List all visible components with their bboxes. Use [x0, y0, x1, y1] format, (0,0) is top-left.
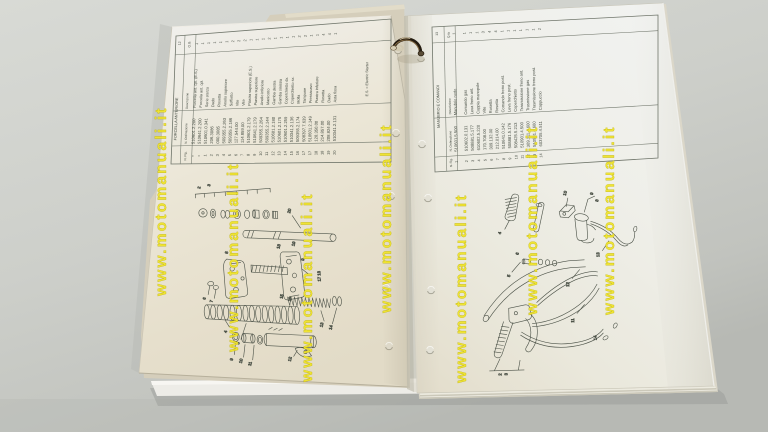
- svg-text:Coperchietto: Coperchietto: [512, 88, 517, 112]
- svg-text:1: 1: [249, 39, 253, 41]
- svg-text:2: 2: [231, 40, 235, 42]
- svg-text:www.motomanuali.it: www.motomanuali.it: [378, 123, 395, 314]
- svg-text:Q.tà: Q.tà: [447, 32, 451, 38]
- svg-text:12: 12: [178, 41, 182, 45]
- svg-text:Descrizione: Descrizione: [185, 92, 190, 109]
- svg-text:206.3086: 206.3086: [209, 125, 215, 143]
- svg-text:Manicotto: Manicotto: [266, 88, 270, 105]
- svg-text:510341.2.131: 510341.2.131: [332, 115, 337, 141]
- svg-text:114.859.00: 114.859.00: [240, 122, 246, 143]
- svg-text:127.544.00: 127.544.00: [234, 122, 240, 144]
- svg-text:2: 2: [304, 35, 308, 37]
- svg-text:508397.7.639: 508397.7.639: [301, 116, 306, 142]
- svg-text:2: 2: [538, 28, 542, 30]
- svg-text:212.014.00: 212.014.00: [494, 128, 499, 150]
- svg-text:N. Fig.: N. Fig.: [183, 151, 187, 160]
- svg-text:1: 1: [219, 41, 223, 43]
- svg-text:510601.2.179: 510601.2.179: [246, 117, 252, 143]
- svg-text:2: 2: [465, 160, 469, 162]
- svg-text:17: 17: [307, 151, 312, 155]
- svg-text:Dado: Dado: [327, 93, 331, 102]
- svg-text:8: 8: [502, 158, 506, 160]
- svg-text:13: 13: [276, 151, 281, 155]
- svg-text:18: 18: [313, 151, 318, 155]
- svg-text:610602.5.220: 610602.5.220: [476, 124, 481, 150]
- svg-text:1: 1: [273, 37, 277, 39]
- svg-text:11: 11: [264, 152, 269, 156]
- svg-text:510601.2.180: 510601.2.180: [270, 116, 276, 142]
- svg-text:309.132.00: 309.132.00: [488, 128, 493, 150]
- svg-text:1: 1: [207, 42, 211, 44]
- svg-text:4: 4: [477, 159, 481, 161]
- svg-text:1: 1: [525, 29, 529, 31]
- svg-text:1: 1: [500, 30, 504, 32]
- svg-text:E.S. = Electric Starter: E.S. = Electric Starter: [365, 61, 369, 96]
- svg-text:Piastra superiore: Piastra superiore: [254, 77, 259, 106]
- svg-text:3: 3: [471, 160, 475, 162]
- svg-text:1: 1: [225, 41, 229, 43]
- svg-text:1: 1: [334, 33, 338, 35]
- svg-text:6: 6: [490, 159, 494, 161]
- svg-text:510601.2.200: 510601.2.200: [191, 118, 197, 144]
- svg-text:www.motomanuali.it: www.motomanuali.it: [299, 192, 316, 383]
- svg-text:12: 12: [565, 281, 570, 286]
- svg-text:www.motomanuali.it: www.motomanuali.it: [601, 125, 618, 316]
- svg-text:www.motomanuali.it: www.motomanuali.it: [225, 162, 242, 353]
- svg-text:Q.tà: Q.tà: [187, 41, 191, 47]
- svg-text:19: 19: [326, 151, 331, 155]
- svg-text:5: 5: [227, 154, 232, 156]
- svg-text:170.708.00: 170.708.00: [482, 128, 487, 150]
- svg-text:Gamba sinistra: Gamba sinistra: [278, 78, 282, 104]
- svg-text:1: 1: [452, 33, 456, 35]
- svg-text:1: 1: [519, 29, 523, 31]
- svg-text:128.350.00: 128.350.00: [314, 120, 319, 142]
- svg-text:2: 2: [237, 40, 241, 42]
- svg-text:Coperchietto dx.: Coperchietto dx.: [284, 77, 288, 105]
- svg-text:1: 1: [195, 43, 199, 45]
- svg-text:510601.5.500: 510601.5.500: [453, 125, 458, 151]
- svg-text:Rosetta: Rosetta: [217, 93, 221, 107]
- svg-text:Descrizione: Descrizione: [448, 98, 452, 115]
- svg-text:510601.2.175: 510601.2.175: [277, 116, 282, 142]
- svg-text:MANUBRIO E COMANDI: MANUBRIO E COMANDI: [436, 85, 441, 128]
- svg-text:8: 8: [246, 154, 251, 156]
- svg-text:510601.2.259: 510601.2.259: [283, 116, 288, 142]
- svg-text:1: 1: [506, 30, 510, 32]
- svg-text:510341.2.136: 510341.2.136: [289, 116, 294, 142]
- svg-text:214.857.00: 214.857.00: [320, 120, 325, 142]
- svg-text:509355.2.264: 509355.2.264: [258, 116, 264, 142]
- svg-text:Trasmissione gas: Trasmissione gas: [525, 80, 530, 111]
- svg-text:Trasmissione freno post.: Trasmissione freno post.: [531, 67, 536, 111]
- svg-text:Anello superiore: Anello superiore: [223, 79, 228, 107]
- svg-text:Comando freno post.: Comando freno post.: [500, 75, 506, 112]
- svg-text:Tampone: Tampone: [303, 88, 307, 104]
- svg-text:Asta fissa: Asta fissa: [333, 85, 337, 102]
- svg-text:000.3085: 000.3085: [215, 125, 221, 143]
- svg-text:Vite: Vite: [242, 99, 246, 106]
- svg-text:www.motomanuali.it: www.motomanuali.it: [153, 106, 170, 297]
- svg-text:1: 1: [279, 37, 283, 39]
- svg-text:510641.0.142: 510641.0.142: [501, 123, 506, 149]
- svg-text:1: 1: [286, 36, 290, 38]
- svg-text:508881.5.177: 508881.5.177: [469, 124, 474, 150]
- svg-text:509355.2.263: 509355.2.263: [221, 117, 227, 143]
- svg-text:2: 2: [298, 35, 302, 37]
- svg-text:1: 1: [469, 32, 473, 34]
- svg-text:4: 4: [494, 30, 498, 32]
- svg-text:Serie sterzo: Serie sterzo: [205, 87, 210, 107]
- svg-text:17: 17: [301, 151, 306, 155]
- svg-text:5: 5: [483, 159, 487, 161]
- svg-text:1: 1: [213, 41, 217, 43]
- svg-text:10: 10: [514, 155, 518, 159]
- svg-text:Leva freno ant.: Leva freno ant.: [469, 88, 474, 115]
- svg-text:www.motomanuali.it: www.motomanuali.it: [524, 125, 541, 316]
- svg-text:509355.2.186: 509355.2.186: [227, 117, 233, 143]
- svg-text:Pressacavo: Pressacavo: [309, 83, 313, 103]
- svg-text:9: 9: [508, 157, 512, 159]
- svg-text:7: 7: [239, 154, 244, 156]
- svg-text:3: 3: [481, 31, 485, 33]
- svg-text:1: 1: [513, 29, 517, 31]
- svg-text:Cappuccio: Cappuccio: [537, 91, 542, 111]
- svg-text:Soffietto: Soffietto: [229, 92, 233, 106]
- svg-text:Molla: Molla: [297, 94, 301, 104]
- svg-text:Manubrio nudo: Manubrio nudo: [452, 88, 458, 116]
- svg-text:17 18: 17 18: [316, 270, 321, 281]
- svg-text:1: 1: [202, 154, 207, 156]
- svg-text:Rosetta: Rosetta: [321, 89, 325, 103]
- svg-text:508425.5.213: 508425.5.213: [513, 122, 518, 148]
- svg-text:509355.2.174: 509355.2.174: [295, 116, 300, 142]
- svg-text:Vite: Vite: [236, 100, 240, 107]
- svg-text:Gamba destra: Gamba destra: [272, 80, 276, 105]
- svg-text:510601.0.341: 510601.0.341: [203, 117, 209, 143]
- svg-text:www.motomanuali.it: www.motomanuali.it: [453, 193, 470, 384]
- svg-text:Dado: Dado: [211, 98, 215, 107]
- svg-text:1: 1: [292, 36, 296, 38]
- svg-text:Rosetta: Rosetta: [494, 98, 499, 113]
- svg-text:Comando gas: Comando gas: [463, 90, 468, 115]
- svg-text:N. Ordinazione: N. Ordinazione: [184, 123, 189, 144]
- svg-text:2: 2: [267, 37, 271, 39]
- svg-text:1: 1: [455, 161, 459, 163]
- svg-text:Trasmissione freno ant.: Trasmissione freno ant.: [519, 70, 525, 112]
- svg-text:1: 1: [201, 42, 205, 44]
- svg-text:510641.2.179: 510641.2.179: [252, 117, 258, 143]
- svg-text:14: 14: [592, 335, 597, 340]
- svg-text:4: 4: [488, 31, 492, 33]
- svg-text:4: 4: [328, 33, 332, 35]
- svg-text:18: 18: [320, 151, 325, 155]
- svg-text:13: 13: [435, 32, 439, 36]
- svg-text:1: 1: [316, 34, 320, 36]
- svg-text:1: 1: [310, 34, 314, 36]
- svg-text:N. Fig.: N. Fig.: [449, 158, 453, 167]
- svg-text:1: 1: [463, 32, 467, 34]
- svg-text:Coperchietto sx.: Coperchietto sx.: [291, 77, 295, 104]
- svg-text:6: 6: [233, 154, 238, 156]
- svg-text:Anello inferiore: Anello inferiore: [260, 80, 265, 105]
- svg-text:510601.2.149: 510601.2.149: [307, 115, 312, 141]
- svg-text:509355.2.144: 509355.2.144: [264, 116, 270, 142]
- svg-text:13: 13: [595, 252, 600, 257]
- svg-text:7: 7: [496, 158, 500, 160]
- svg-text:Vite: Vite: [482, 106, 487, 114]
- svg-text:510602.0.131: 510602.0.131: [463, 125, 468, 151]
- svg-text:9: 9: [252, 154, 257, 156]
- svg-text:1: 1: [532, 28, 536, 30]
- svg-text:2: 2: [243, 39, 247, 41]
- svg-text:510641.2.200: 510641.2.200: [197, 118, 203, 144]
- svg-text:Piastra inferiore: Piastra inferiore: [315, 76, 319, 103]
- svg-text:1: 1: [255, 38, 259, 40]
- svg-text:3: 3: [215, 154, 220, 156]
- svg-text:1: 1: [475, 31, 479, 33]
- svg-text:508881.5.176: 508881.5.176: [507, 122, 512, 148]
- svg-text:16: 16: [295, 151, 300, 155]
- svg-text:208.824.00: 208.824.00: [326, 120, 331, 142]
- svg-text:12: 12: [270, 151, 275, 155]
- svg-text:N. Ordinazione: N. Ordinazione: [448, 130, 452, 151]
- svg-text:2: 2: [209, 154, 214, 156]
- svg-text:1: 1: [261, 38, 265, 40]
- svg-text:15: 15: [289, 151, 294, 155]
- svg-text:11: 11: [570, 318, 575, 323]
- svg-text:4: 4: [322, 34, 326, 36]
- svg-text:Rosetta: Rosetta: [488, 99, 493, 114]
- svg-text:Coppia manopole: Coppia manopole: [475, 82, 481, 114]
- svg-text:Leva freno post.: Leva freno post.: [506, 83, 511, 112]
